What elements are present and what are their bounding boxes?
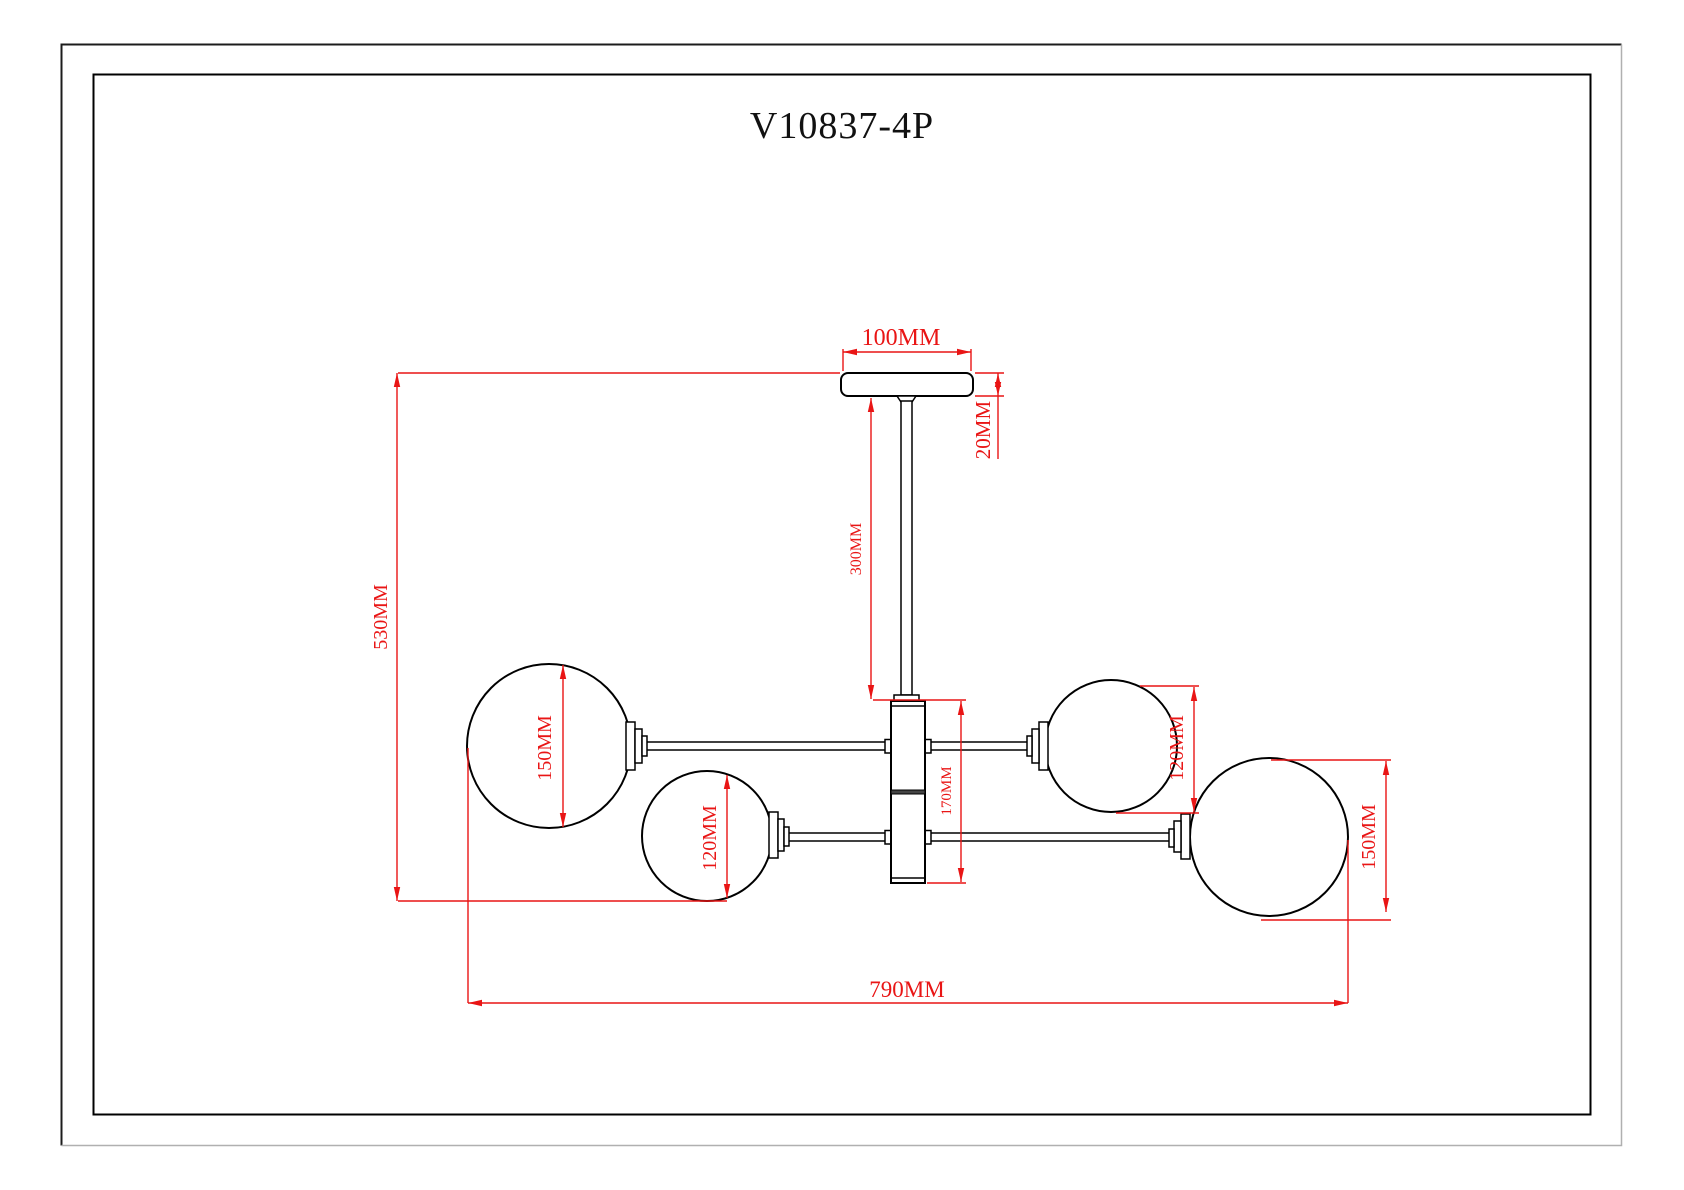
inner-frame <box>94 75 1591 1115</box>
dim-label-globe-lower-left: 120MM <box>699 805 721 871</box>
globe-upper-right <box>1045 680 1177 812</box>
central-body <box>891 701 925 883</box>
outer-frame-light-edge <box>62 45 1622 1146</box>
dim-globe-upper-left: 150MM <box>534 665 563 827</box>
arm-upper-right <box>929 742 1031 750</box>
dim-globe-lower-left: 120MM <box>699 775 727 898</box>
page-title: V10837-4P <box>750 105 934 147</box>
arm-lower-left <box>787 833 887 841</box>
dim-label-globe-upper-left: 150MM <box>534 715 556 781</box>
technical-drawing-canvas: V10837-4P <box>0 0 1684 1190</box>
stem-tube <box>901 401 912 695</box>
dim-label-globe-upper-right: 120MM <box>1166 715 1188 781</box>
border-frame <box>62 45 1622 1146</box>
dim-label-canopy-width: 100MM <box>862 325 941 351</box>
dim-label-canopy-height: 20MM <box>971 401 995 460</box>
outer-frame-dark-edge <box>62 45 1622 1146</box>
dim-label-overall-width: 790MM <box>869 977 944 1002</box>
ceiling-canopy <box>841 373 973 396</box>
fitter-upper-left <box>626 722 647 770</box>
body-divider <box>891 790 925 794</box>
globe-lower-right <box>1190 758 1348 916</box>
dim-label-globe-lower-right: 150MM <box>1358 804 1380 870</box>
fitter-lower-left <box>769 812 789 858</box>
drawing-page: V10837-4P <box>0 0 1684 1190</box>
arm-upper-left <box>645 742 887 750</box>
dimensions: 100MM 20MM 300MM 530MM 790MM <box>370 325 1391 1003</box>
fitter-upper-right <box>1027 722 1048 770</box>
dim-stem-length: 300MM <box>848 398 871 699</box>
dim-label-overall-height: 530MM <box>370 584 392 650</box>
fitter-lower-right <box>1169 814 1190 859</box>
dim-globe-lower-right: 150MM <box>1261 760 1391 920</box>
dim-canopy-width: 100MM <box>843 325 971 371</box>
arm-lower-right <box>929 833 1171 841</box>
dim-label-stem-length: 300MM <box>848 523 865 575</box>
lamp-fixture <box>467 373 1348 916</box>
dim-label-body-height: 170MM <box>939 766 955 815</box>
dim-canopy-height: 20MM <box>971 373 1004 459</box>
